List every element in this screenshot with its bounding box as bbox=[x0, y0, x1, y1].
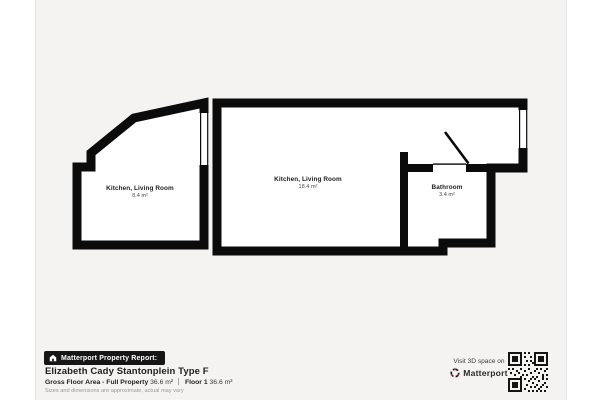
visit-label: Visit 3D space on bbox=[450, 358, 508, 365]
floor-label: Floor 1 bbox=[185, 379, 208, 386]
visit-3d-block: Visit 3D space on Matterport bbox=[450, 358, 508, 378]
gross-area-value: 36.6 m² bbox=[150, 379, 173, 386]
window-left-unit bbox=[200, 113, 209, 165]
room-area: 8.4 m² bbox=[106, 193, 174, 199]
floorplan-drawing bbox=[0, 0, 600, 400]
matterport-brand: Matterport bbox=[450, 368, 508, 378]
room-name: Kitchen, Living Room bbox=[106, 185, 174, 192]
left-unit-walls bbox=[77, 103, 204, 245]
floor-value: 36.6 m² bbox=[210, 379, 233, 386]
matterport-wordmark: Matterport bbox=[463, 368, 508, 378]
window-right-unit bbox=[519, 110, 528, 148]
room-label-kitchen-living-small: Kitchen, Living Room 8.4 m² bbox=[106, 185, 174, 199]
matterport-logo-icon bbox=[450, 368, 460, 378]
badge-label: Matterport Property Report: bbox=[61, 355, 157, 362]
room-area: 3.4 m² bbox=[432, 192, 463, 198]
room-label-kitchen-living-large: Kitchen, Living Room 18.4 m² bbox=[274, 176, 342, 190]
house-icon bbox=[49, 354, 57, 362]
disclaimer-text: Sizes and dimensions are approximate, ac… bbox=[45, 388, 184, 394]
room-name: Bathroom bbox=[432, 184, 463, 191]
divider bbox=[178, 378, 179, 385]
floor-area-summary: Gross Floor Area - Full Property 36.6 m²… bbox=[45, 378, 233, 386]
property-title: Elizabeth Cady Stantonplein Type F bbox=[45, 366, 209, 377]
qr-code-icon bbox=[508, 352, 548, 392]
gross-area-label: Gross Floor Area - Full Property bbox=[45, 379, 148, 386]
bathroom-doorway bbox=[433, 163, 466, 173]
right-unit-walls bbox=[217, 103, 523, 251]
room-name: Kitchen, Living Room bbox=[274, 176, 342, 183]
room-area: 18.4 m² bbox=[274, 184, 342, 190]
room-label-bathroom: Bathroom 3.4 m² bbox=[432, 184, 463, 198]
report-badge: Matterport Property Report: bbox=[44, 351, 165, 365]
